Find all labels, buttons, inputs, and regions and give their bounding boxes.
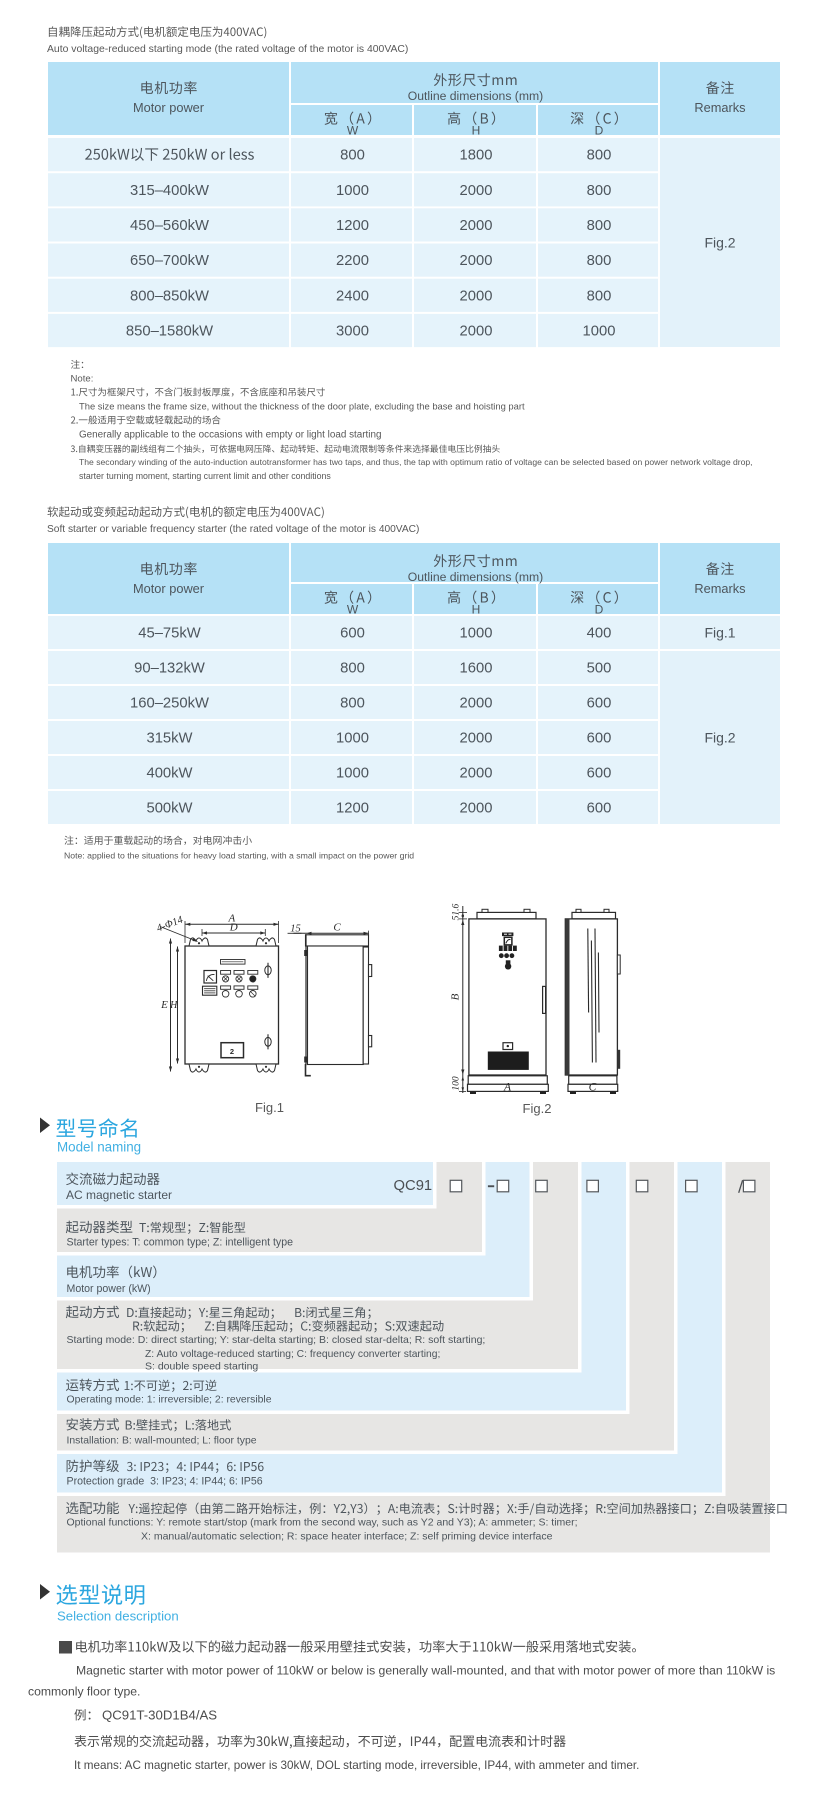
- svg-text:1200: 1200: [336, 801, 369, 817]
- svg-text:QC91: QC91: [394, 1178, 433, 1194]
- svg-text:Fig.2: Fig.2: [704, 730, 735, 746]
- svg-text:2000: 2000: [460, 288, 493, 304]
- svg-text:2000: 2000: [460, 731, 493, 747]
- svg-text:Motor power: Motor power: [133, 581, 205, 596]
- svg-text:QC91T-30D1B4/AS: QC91T-30D1B4/AS: [102, 1708, 217, 1723]
- svg-text:Remarks: Remarks: [694, 100, 745, 115]
- svg-text:800–850kW: 800–850kW: [130, 288, 209, 304]
- svg-text:500kW: 500kW: [146, 801, 192, 817]
- svg-text:X: manual/automatic selection;: X: manual/automatic selection; R: space …: [141, 1531, 553, 1543]
- svg-text:500: 500: [587, 661, 612, 677]
- svg-text:315–400kW: 315–400kW: [130, 183, 209, 199]
- svg-text:800: 800: [587, 183, 612, 199]
- svg-text:Motor power (kW): Motor power (kW): [67, 1283, 151, 1295]
- svg-text:C: C: [589, 1082, 597, 1094]
- svg-text:1000: 1000: [460, 626, 493, 642]
- svg-text:Protection grade 3: IP23; 4:: Protection grade 3: IP23; 4: IP44; 6: IP…: [67, 1476, 263, 1488]
- svg-text:D: D: [595, 124, 604, 138]
- svg-text:Model naming: Model naming: [57, 1140, 141, 1155]
- svg-text:commonly floor type.: commonly floor type.: [28, 1685, 140, 1699]
- svg-text:1200: 1200: [336, 218, 369, 234]
- svg-text:90–132kW: 90–132kW: [134, 661, 205, 677]
- svg-text:D: D: [595, 603, 604, 617]
- svg-text:D: D: [229, 922, 238, 934]
- svg-text:The size means the frame size,: The size means the frame size, without t…: [79, 401, 525, 412]
- svg-text:S: double speed starting: S: double speed starting: [145, 1361, 258, 1373]
- svg-text:H: H: [169, 1000, 178, 1011]
- svg-text:The secondary winding of the a: The secondary winding of the auto-induct…: [79, 457, 753, 467]
- svg-text:400: 400: [587, 626, 612, 642]
- svg-text:600: 600: [587, 731, 612, 747]
- svg-text:2000: 2000: [460, 766, 493, 782]
- svg-text:2: 2: [230, 1047, 234, 1056]
- svg-text:600: 600: [587, 696, 612, 712]
- svg-text:2200: 2200: [336, 253, 369, 269]
- svg-text:Fig.2: Fig.2: [523, 1101, 552, 1116]
- svg-text:Generally applicable to the oc: Generally applicable to the occasions wi…: [79, 430, 381, 441]
- svg-text:Outline dimensions (mm): Outline dimensions (mm): [408, 89, 543, 103]
- svg-text:Magnetic starter with motor po: Magnetic starter with motor power of 110…: [76, 1664, 775, 1678]
- svg-text:Note: applied to the situation: Note: applied to the situations for heav…: [64, 851, 414, 861]
- svg-text:W: W: [347, 603, 359, 617]
- svg-text:Operating mode: 1: irreversibl: Operating mode: 1: irreversible; 2: reve…: [67, 1395, 272, 1406]
- svg-text:2000: 2000: [460, 183, 493, 199]
- svg-text:2000: 2000: [460, 253, 493, 269]
- svg-text:800: 800: [340, 661, 365, 677]
- svg-text:Auto voltage-reduced starting: Auto voltage-reduced starting mode (the …: [47, 44, 408, 55]
- svg-text:Installation: B: wall-mounted;: Installation: B: wall-mounted; L: floor …: [67, 1436, 257, 1447]
- svg-text:2000: 2000: [460, 801, 493, 817]
- svg-text:800: 800: [587, 218, 612, 234]
- svg-text:B: B: [450, 993, 462, 1000]
- svg-text:51.6: 51.6: [452, 903, 462, 920]
- svg-text:Starter types: T: common type;: Starter types: T: common type; Z: intell…: [67, 1237, 294, 1249]
- svg-text:Fig.2: Fig.2: [704, 235, 735, 251]
- svg-text:1600: 1600: [460, 661, 493, 677]
- svg-text:starter turning moment, starti: starter turning moment, starting current…: [79, 471, 331, 481]
- svg-text:400kW: 400kW: [146, 766, 192, 782]
- svg-text:100: 100: [452, 1076, 462, 1091]
- svg-text:Remarks: Remarks: [694, 581, 745, 596]
- svg-text:AC magnetic starter: AC magnetic starter: [66, 1188, 172, 1202]
- svg-text:1000: 1000: [583, 323, 616, 339]
- svg-text:Selection description: Selection description: [57, 1609, 179, 1624]
- svg-text:Motor power: Motor power: [133, 100, 205, 115]
- svg-text:W: W: [347, 124, 359, 138]
- svg-text:850–1580kW: 850–1580kW: [126, 323, 213, 339]
- svg-text:Starting mode: D: direct start: Starting mode: D: direct starting; Y: st…: [67, 1334, 486, 1346]
- svg-text:2000: 2000: [460, 218, 493, 234]
- svg-text:E: E: [160, 999, 168, 1011]
- svg-text:800: 800: [587, 148, 612, 164]
- svg-text:45–75kW: 45–75kW: [138, 626, 201, 642]
- svg-text:1000: 1000: [336, 183, 369, 199]
- svg-text:2000: 2000: [460, 696, 493, 712]
- svg-text:A: A: [503, 1082, 512, 1094]
- svg-text:Note:: Note:: [71, 374, 94, 385]
- svg-text:600: 600: [587, 766, 612, 782]
- svg-text:800: 800: [587, 253, 612, 269]
- svg-text:600: 600: [587, 801, 612, 817]
- svg-text:Outline dimensions (mm): Outline dimensions (mm): [408, 570, 543, 584]
- svg-text:It means: AC magnetic starter,: It means: AC magnetic starter, power is …: [74, 1759, 639, 1772]
- svg-text:450–560kW: 450–560kW: [130, 218, 209, 234]
- svg-text:800: 800: [587, 288, 612, 304]
- svg-text:Soft starter or variable frequ: Soft starter or variable frequency start…: [47, 524, 419, 535]
- svg-text:4-Φ14: 4-Φ14: [155, 914, 185, 934]
- svg-text:315kW: 315kW: [146, 731, 192, 747]
- svg-text:2400: 2400: [336, 288, 369, 304]
- svg-text:H: H: [472, 124, 481, 138]
- svg-text:600: 600: [340, 626, 365, 642]
- svg-text:Fig.1: Fig.1: [704, 625, 735, 641]
- svg-text:H: H: [472, 603, 481, 617]
- svg-text:Fig.1: Fig.1: [255, 1100, 284, 1115]
- svg-text:3000: 3000: [336, 323, 369, 339]
- svg-text:650–700kW: 650–700kW: [130, 253, 209, 269]
- svg-text:Z: Auto voltage-reduced starti: Z: Auto voltage-reduced starting; C: fre…: [145, 1349, 440, 1360]
- svg-text:1000: 1000: [336, 731, 369, 747]
- svg-text:800: 800: [340, 148, 365, 164]
- svg-text:C: C: [333, 922, 341, 934]
- svg-text:1000: 1000: [336, 766, 369, 782]
- svg-text:800: 800: [340, 696, 365, 712]
- svg-text:1800: 1800: [460, 148, 493, 164]
- svg-text:160–250kW: 160–250kW: [130, 696, 209, 712]
- svg-text:2000: 2000: [460, 323, 493, 339]
- svg-text:Optional functions: Y: remote: Optional functions: Y: remote start/stop…: [67, 1517, 578, 1529]
